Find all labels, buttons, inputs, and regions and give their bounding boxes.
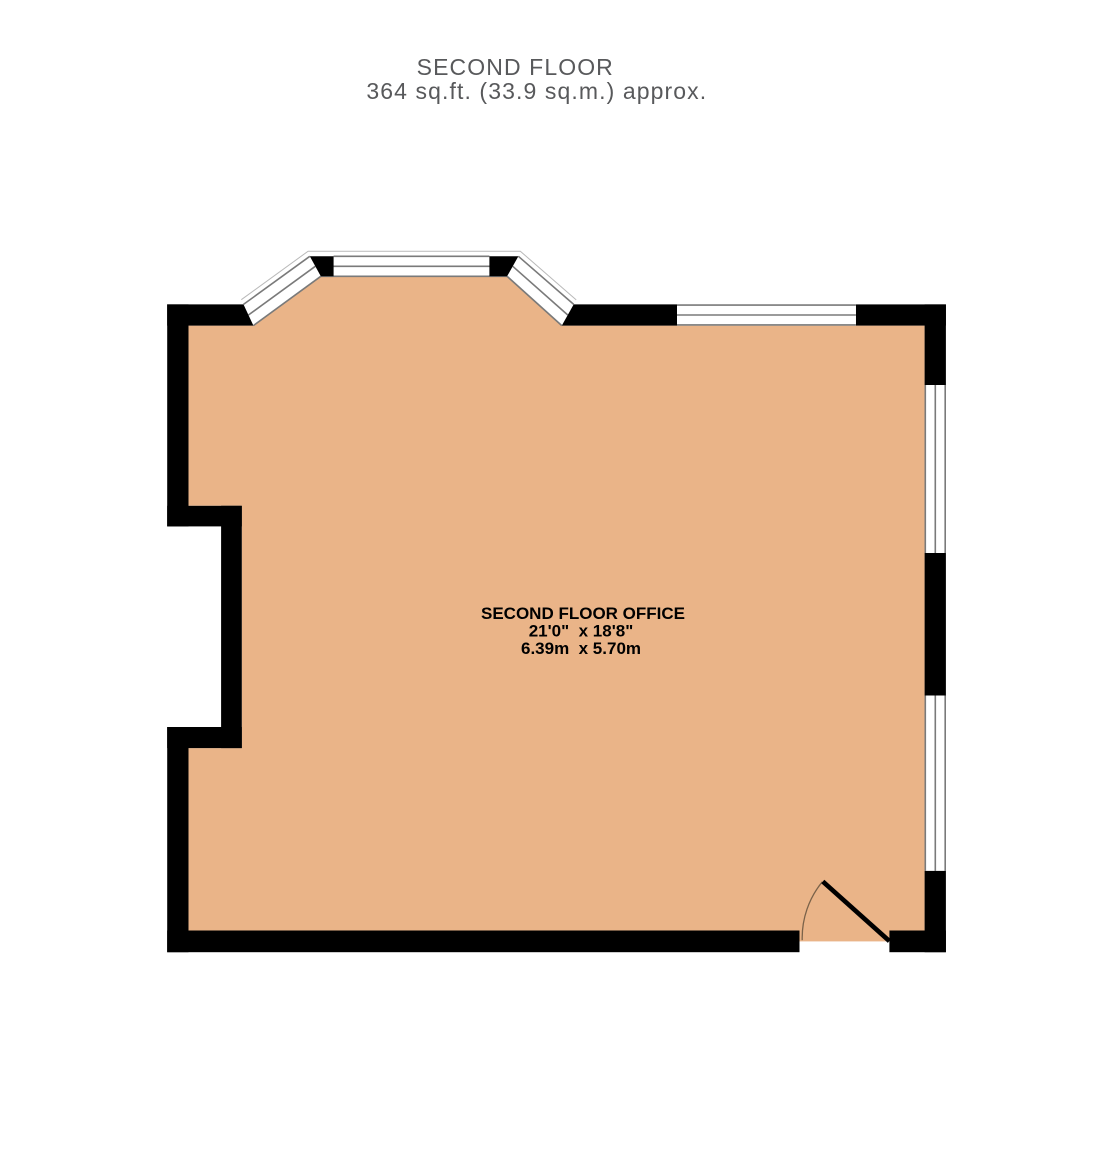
svg-text:364 sq.ft. (33.9 sq.m.) approx: 364 sq.ft. (33.9 sq.m.) approx.: [366, 78, 707, 104]
svg-text:6.39m x 5.70m: 6.39m x 5.70m: [521, 639, 641, 658]
svg-text:SECOND FLOOR OFFICE: SECOND FLOOR OFFICE: [481, 604, 685, 623]
svg-text:21'0" x 18'8": 21'0" x 18'8": [529, 622, 634, 641]
svg-text:SECOND FLOOR: SECOND FLOOR: [417, 54, 614, 80]
